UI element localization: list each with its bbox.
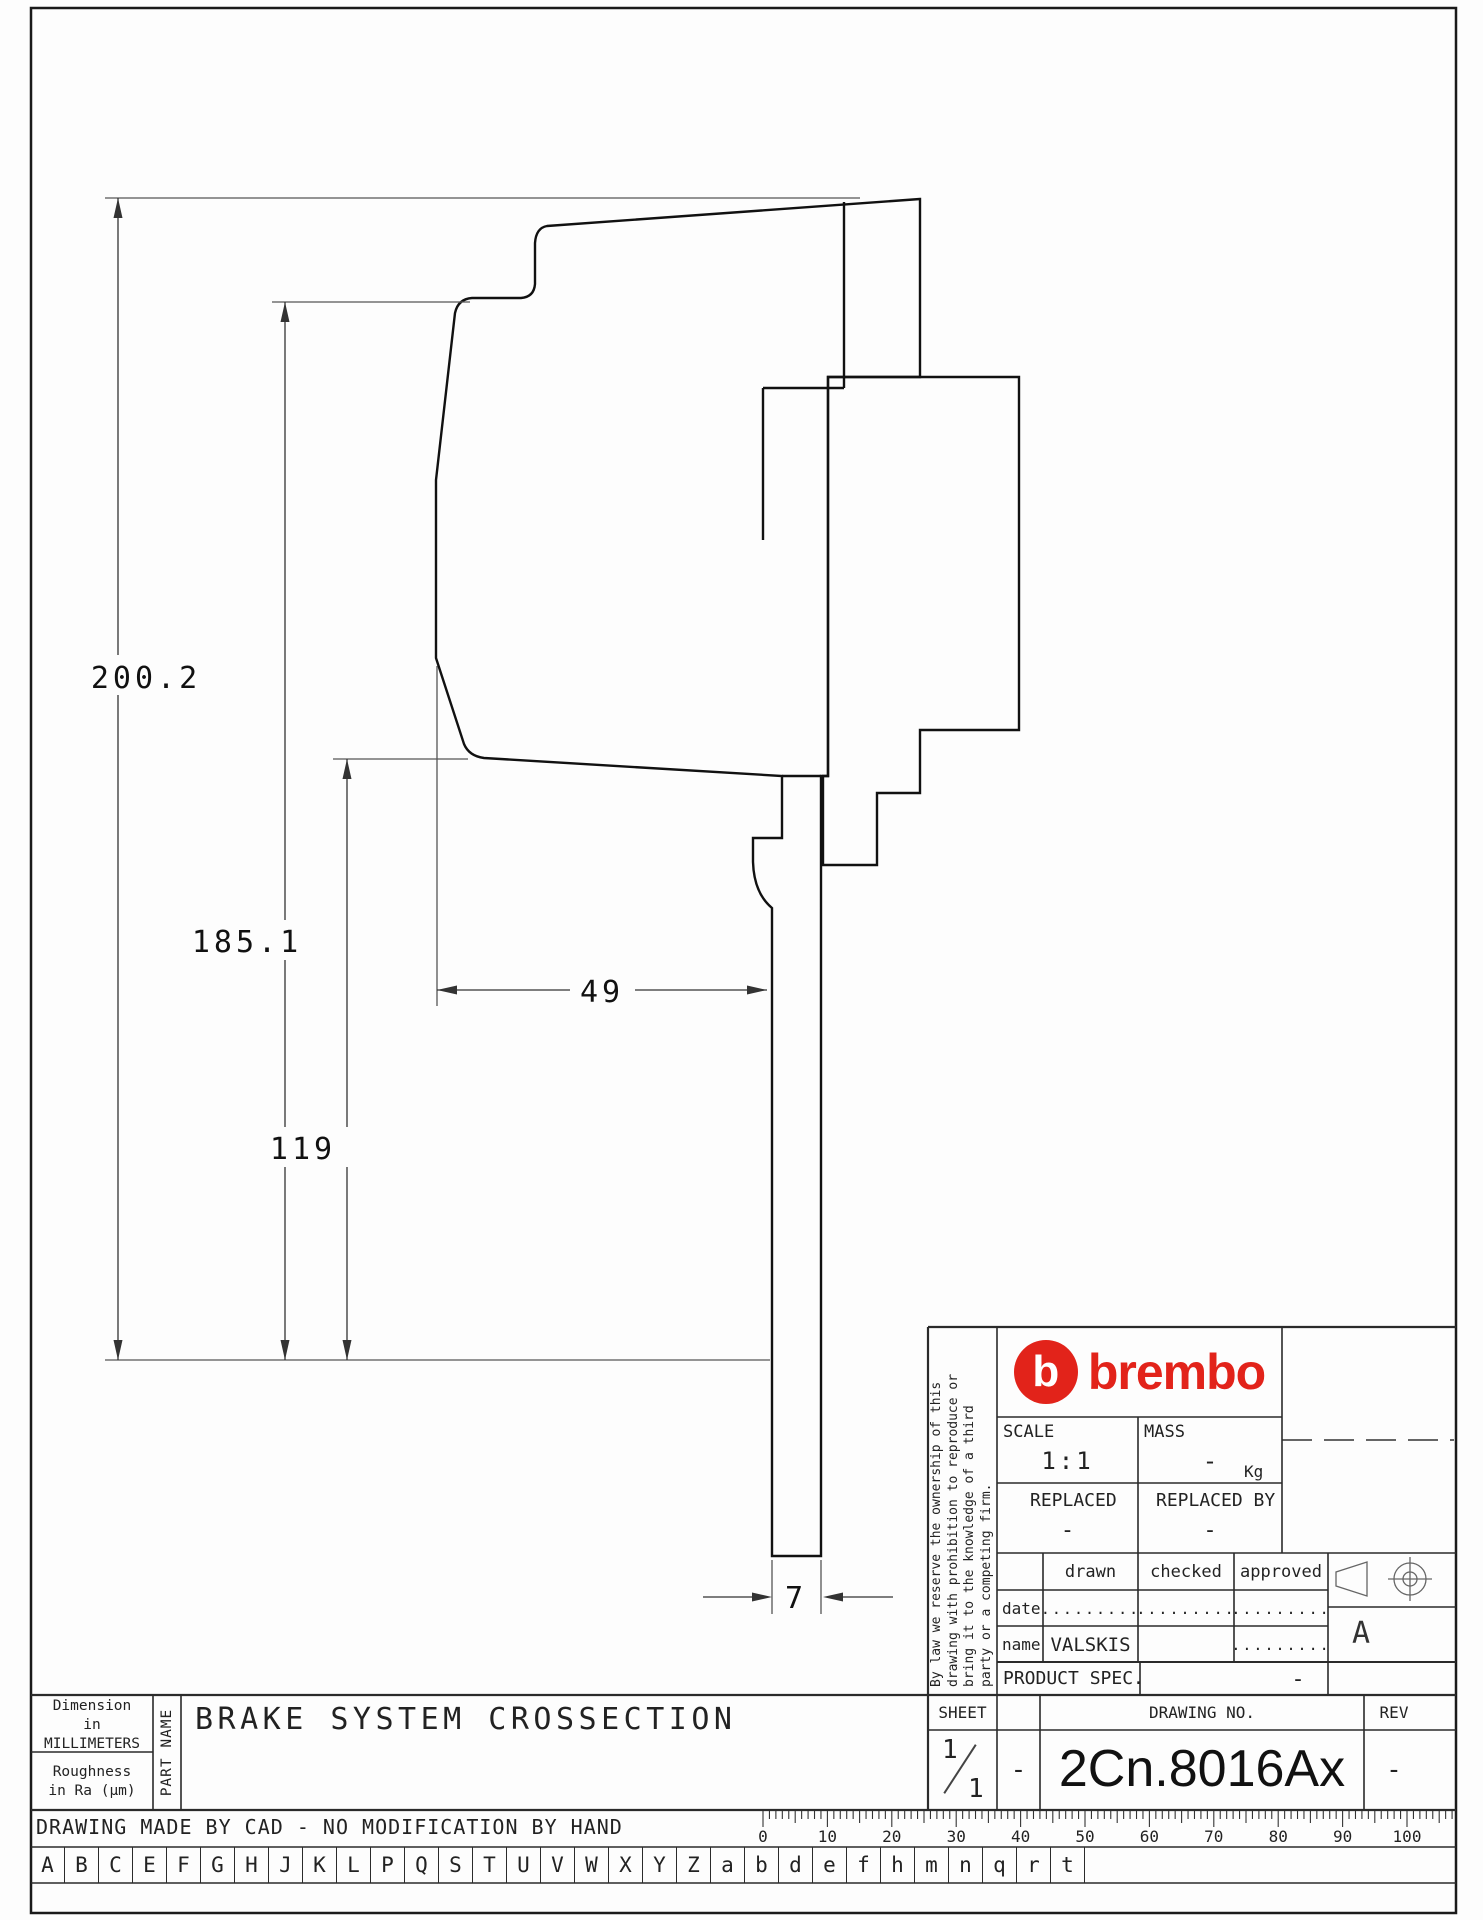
ruler-number: 80 [1269, 1827, 1288, 1846]
roughness-note-line2: in Ra (μm) [48, 1782, 135, 1801]
scale-ruler: 0102030405060708090100 [758, 1811, 1452, 1846]
sheet-numerator: 1 [942, 1735, 958, 1765]
ruler-number: 50 [1075, 1827, 1094, 1846]
part-name-column: PART NAME [153, 1695, 181, 1810]
revision-letter-cell: n [949, 1847, 983, 1883]
name-approved-dots: ......... [1234, 1630, 1328, 1660]
mass-label: MASS [1144, 1422, 1185, 1442]
legal-notice-text: By law we reserve the ownership of thisd… [929, 1325, 995, 1691]
date-drawn-dots: ......... [1043, 1594, 1138, 1624]
dimension-note: Dimension in MILLIMETERS [31, 1700, 153, 1750]
revision-letter-cell: t [1051, 1847, 1085, 1883]
date-approved-dots: ......... [1234, 1594, 1328, 1624]
legal-notice-line: drawing with prohibition to reproduce or [946, 1325, 963, 1687]
revision-letter-cell: H [235, 1847, 269, 1883]
dim-total-height: 200.2 [91, 661, 201, 696]
revision-letter-cell: L [337, 1847, 371, 1883]
brembo-logo-letter: b [1032, 1347, 1059, 1397]
product-spec-value: - [1140, 1664, 1456, 1694]
col-drawn-label: drawn [1043, 1555, 1138, 1588]
ruler-number: 70 [1204, 1827, 1223, 1846]
revision-letter-cell: m [915, 1847, 949, 1883]
revision-letter-cell: Y [643, 1847, 677, 1883]
name-drawn-value: VALSKIS [1043, 1630, 1138, 1660]
dim-disc-thickness: 7 [785, 1581, 807, 1616]
sheet-adjacent-value: - [997, 1750, 1040, 1790]
revision-letter-cell: A [31, 1847, 65, 1883]
revision-letter-cell: C [99, 1847, 133, 1883]
date-checked-dots: ......... [1138, 1594, 1234, 1624]
revision-letter-cell: P [371, 1847, 405, 1883]
part-title: BRAKE SYSTEM CROSSECTION [195, 1702, 736, 1737]
revision-letter-cell: S [439, 1847, 473, 1883]
revision-letter-cell: X [609, 1847, 643, 1883]
row-date-label: date [1002, 1599, 1041, 1618]
ruler-number: 20 [882, 1827, 901, 1846]
dimension-texts: 200.2 185.1 119 49 7 [83, 655, 807, 1616]
revision-letter-cell: B [65, 1847, 99, 1883]
dimension-note-line2: in MILLIMETERS [31, 1716, 153, 1754]
revision-letter-cell: q [983, 1847, 1017, 1883]
brembo-wordmark: brembo [1088, 1343, 1265, 1401]
revision-letter-cell: h [881, 1847, 915, 1883]
mass-unit: Kg [1244, 1462, 1263, 1481]
disc-hat-and-ring-path [436, 199, 920, 1556]
ruler-number: 100 [1393, 1827, 1422, 1846]
dim-mid-height: 185.1 [192, 925, 302, 960]
ruler-number: 40 [1011, 1827, 1030, 1846]
roughness-note: Roughness in Ra (μm) [31, 1757, 153, 1807]
row-name-label: name [1002, 1635, 1041, 1654]
replaced-by-value: - [1138, 1516, 1282, 1544]
format-letter: A [1352, 1616, 1370, 1651]
revision-letter-cell: V [541, 1847, 575, 1883]
first-angle-projection-icon [1336, 1557, 1432, 1601]
sheet-label: SHEET [928, 1697, 997, 1727]
revision-letter-cell: J [269, 1847, 303, 1883]
scale-value: 1:1 [997, 1446, 1138, 1476]
col-approved-label: approved [1234, 1555, 1328, 1588]
revision-letter-cell: Q [405, 1847, 439, 1883]
dim-lower-height: 119 [270, 1132, 336, 1167]
legal-notice-column: By law we reserve the ownership of thisd… [929, 1329, 997, 1695]
page-border [31, 8, 1456, 1913]
dimension-note-line1: Dimension [53, 1697, 132, 1716]
revision-letter-cell: b [745, 1847, 779, 1883]
revision-letter-cell: Z [677, 1847, 711, 1883]
revision-letter-cell: r [1017, 1847, 1051, 1883]
ruler-number: 60 [1140, 1827, 1159, 1846]
brembo-logo-icon: b [1014, 1340, 1078, 1404]
pad-outline [823, 377, 1019, 865]
revision-letter-cell: a [711, 1847, 745, 1883]
sheet-denominator: 1 [968, 1774, 984, 1804]
ruler-number: 10 [818, 1827, 837, 1846]
revision-letter-cell: F [167, 1847, 201, 1883]
ruler-number: 30 [947, 1827, 966, 1846]
revision-letter-cell: T [473, 1847, 507, 1883]
revision-letter-cell: U [507, 1847, 541, 1883]
roughness-note-line1: Roughness [53, 1763, 132, 1782]
replaced-by-label: REPLACED BY [1156, 1490, 1275, 1511]
revision-letter-cell: e [813, 1847, 847, 1883]
scale-label: SCALE [1003, 1422, 1054, 1442]
part-name-label: PART NAME [153, 1695, 181, 1810]
legal-notice-line: By law we reserve the ownership of this [929, 1325, 946, 1687]
revision-letter-cell: f [847, 1847, 881, 1883]
drawing-sheet: 200.2 185.1 119 49 7 [0, 0, 1483, 1920]
cad-note: DRAWING MADE BY CAD - NO MODIFICATION BY… [36, 1815, 623, 1839]
replaced-label: REPLACED [1030, 1490, 1117, 1511]
col-checked-label: checked [1138, 1555, 1234, 1588]
legal-notice-line: party or a competing firm. [979, 1325, 996, 1687]
replaced-value: - [997, 1516, 1138, 1544]
revision-letter-cell: E [133, 1847, 167, 1883]
ruler-number: 90 [1333, 1827, 1352, 1846]
product-spec-label: PRODUCT SPEC. [1003, 1668, 1144, 1689]
revision-letter-cell: G [201, 1847, 235, 1883]
pad-path [823, 377, 1019, 865]
legal-notice-line: bring it to the knowledge of a third [962, 1325, 979, 1687]
drawing-no-value: 2Cn.8016Ax [1040, 1736, 1364, 1802]
ruler-number: 0 [758, 1827, 768, 1846]
revision-letter-cell: K [303, 1847, 337, 1883]
drawing-no-label: DRAWING NO. [1040, 1697, 1364, 1727]
rev-value: - [1364, 1750, 1424, 1790]
revision-letter-cell: d [779, 1847, 813, 1883]
sheet-number: 1 1 [928, 1730, 997, 1810]
extension-lines [105, 198, 860, 1614]
dimension-lines [114, 198, 894, 1602]
rev-label: REV [1364, 1697, 1424, 1727]
brembo-logo: b brembo [997, 1327, 1282, 1417]
brake-disc-outline [436, 199, 920, 1556]
revision-letter-cell: W [575, 1847, 609, 1883]
dim-pad-width: 49 [580, 975, 624, 1010]
revision-letters-row: ABCEFGHJKLPQSTUVWXYZabdefhmnqrt [31, 1847, 1456, 1883]
